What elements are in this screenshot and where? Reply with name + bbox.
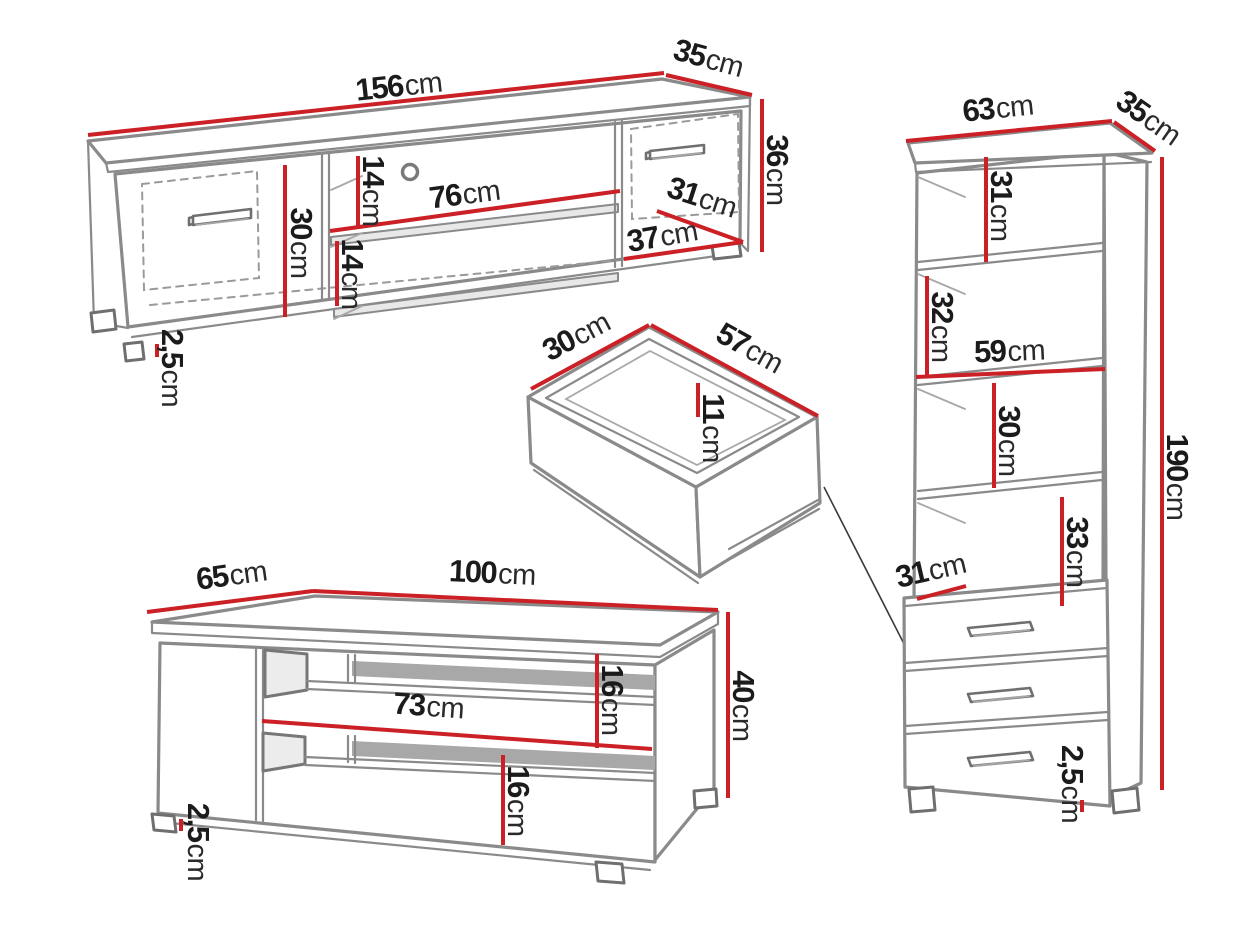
dim-label-cabinet-shelf-width: 59cm (973, 331, 1046, 369)
tv-cable-hole (403, 165, 418, 180)
dim-label-table-width: 100cm (448, 553, 536, 592)
dim-label-table-leg: 2,5cm (181, 803, 216, 881)
dim-label-tv-width: 156cm (354, 63, 444, 107)
dim-label-tv-depth: 35cm (670, 32, 748, 84)
dim-label-tv-bottom-shelf: 14cm (335, 238, 370, 309)
dim-label-table-height: 40cm (726, 670, 761, 741)
dim-label-cabinet-opening-4: 33cm (1060, 516, 1095, 587)
diagram-canvas: 156cm 35cm 36cm 30cm 14cm 76cm 14cm 31cm… (0, 0, 1260, 945)
cabinet-leg-right (1112, 788, 1139, 813)
furniture-dimensions-diagram: 156cm 35cm 36cm 30cm 14cm 76cm 14cm 31cm… (0, 0, 1260, 945)
dim-label-tv-interior-height: 30cm (284, 207, 319, 278)
tv-leg-back-left (91, 310, 116, 332)
dim-label-cabinet-width: 63cm (961, 86, 1035, 128)
dim-label-tv-top-shelf: 14cm (356, 155, 391, 226)
dim-label-table-lower-opening: 16cm (501, 765, 536, 836)
tall-cabinet-drawing: 63cm 35cm 31cm 32cm 59cm 30cm 33cm 31cm … (892, 83, 1195, 823)
dim-label-cabinet-opening-3: 30cm (992, 405, 1027, 476)
dim-label-drawer-height: 11cm (696, 393, 731, 462)
cabinet-side-face (1104, 152, 1147, 799)
dim-label-tv-leg: 2,5cm (155, 329, 190, 407)
dim-label-cabinet-opening-1: 31cm (984, 170, 1019, 241)
table-lower-compartment-wall (263, 733, 305, 771)
dim-label-table-depth: 65cm (194, 552, 269, 597)
table-leg-right (694, 789, 717, 808)
tv-leg-front-left (124, 342, 144, 361)
dim-label-cabinet-height: 190cm (1160, 434, 1195, 521)
dim-label-tv-height: 36cm (760, 134, 795, 205)
dim-label-cabinet-opening-2: 32cm (925, 291, 960, 362)
cabinet-leg-left (909, 787, 935, 812)
dim-label-table-upper-opening: 16cm (595, 664, 630, 735)
coffee-table-drawing: 65cm 100cm 73cm 16cm 16cm 40cm 2,5cm (147, 552, 761, 883)
table-upper-compartment-wall (265, 650, 307, 697)
table-leg-front (596, 862, 624, 883)
table-leg-left (152, 814, 176, 832)
table-right-side-face (655, 630, 714, 860)
